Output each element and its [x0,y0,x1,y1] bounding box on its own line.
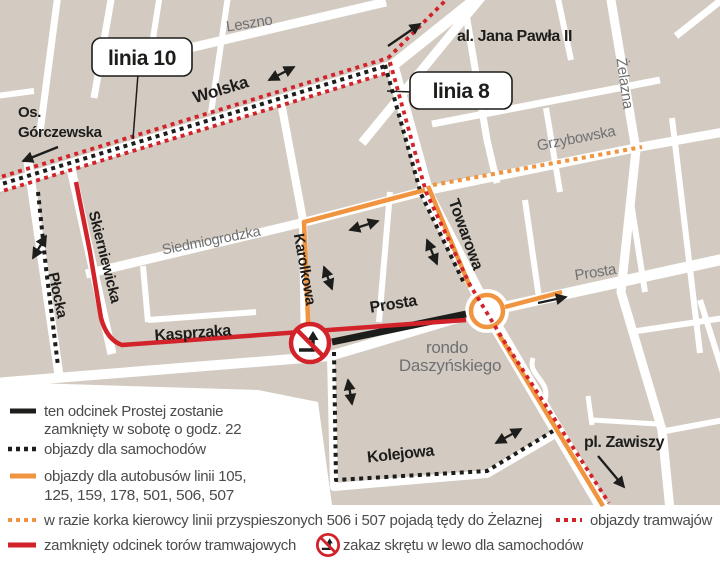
legend-text-bus-detours-2: 125, 159, 178, 501, 506, 507 [44,487,234,504]
legend-text-express-fallback: w razie korka kierowcy linii przyspieszo… [43,511,542,529]
callout-text-linia10: linia 10 [108,47,176,70]
label-os-gorczewska-2: Górczewska [18,124,103,141]
legend-text-closed-prosta-1: ten odcinek Prostej zostanie [44,403,223,420]
label-pl-zawiszy: pl. Zawiszy [584,434,665,451]
legend-text-closed-tram-tracks: zamknięty odcinek torów tramwajowych [44,537,296,554]
label-rondo-1: rondo [426,338,468,357]
legend-text-car-detours: objazdy dla samochodów [44,441,206,458]
label-al-jana-pawla: al. Jana Pawła II [457,28,572,45]
legend-text-tram-detours: objazdy tramwajów [590,512,712,529]
legend-no-left-turn-icon [317,534,338,555]
detour-map-page: Leszno Wolska Os. Górczewska al. Jana Pa… [0,0,720,562]
no-left-turn-icon [291,324,329,362]
legend-text-closed-prosta-2: zamknięty w sobotę o godz. 22 [44,421,241,438]
map-canvas: Leszno Wolska Os. Górczewska al. Jana Pa… [0,0,720,562]
legend-text-bus-detours-1: objazdy dla autobusów linii 105, [44,468,246,485]
label-os-gorczewska-1: Os. [18,104,41,121]
callout-text-linia8: linia 8 [433,80,490,103]
callout-line-linia8 [387,91,412,92]
label-rondo-2: Daszyńskiego [399,356,501,375]
legend-text-no-left-turn: zakaz skrętu w lewo dla samochodów [343,537,583,554]
